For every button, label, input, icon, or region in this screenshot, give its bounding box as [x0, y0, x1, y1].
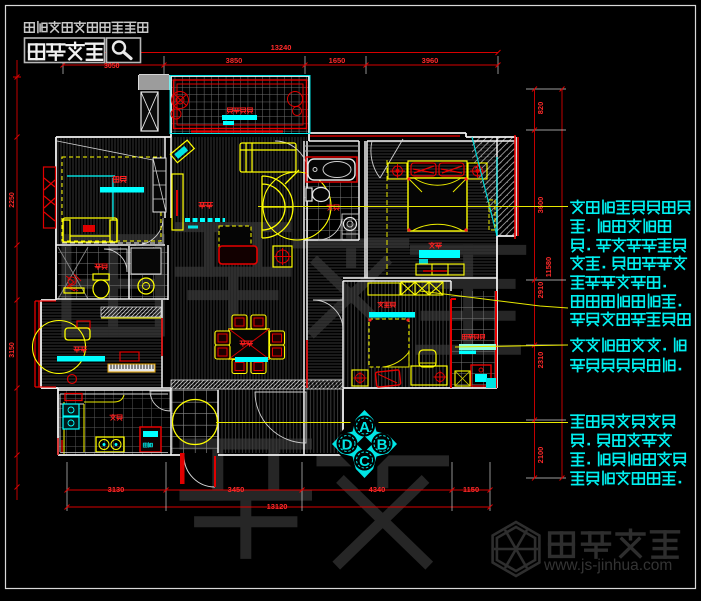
svg-text:2310: 2310	[536, 352, 545, 369]
svg-text:1650: 1650	[329, 56, 346, 65]
svg-text:2100: 2100	[536, 447, 545, 464]
svg-text:A: A	[359, 419, 370, 436]
svg-text:2250: 2250	[9, 192, 16, 208]
svg-text:820: 820	[536, 102, 545, 115]
svg-text:1150: 1150	[463, 485, 479, 494]
svg-text:13240: 13240	[271, 43, 292, 52]
svg-text:11580: 11580	[544, 257, 553, 277]
svg-text:3450: 3450	[228, 485, 245, 494]
svg-text:2910: 2910	[536, 282, 545, 299]
svg-text:3050: 3050	[104, 63, 120, 70]
svg-text:C: C	[359, 453, 370, 470]
svg-text:3130: 3130	[108, 485, 125, 494]
svg-text:3150: 3150	[9, 342, 16, 358]
svg-text:www.js-jinhua.com: www.js-jinhua.com	[543, 557, 672, 574]
svg-text:3600: 3600	[536, 197, 545, 214]
svg-text:4340: 4340	[369, 485, 386, 494]
svg-text:3960: 3960	[422, 56, 439, 65]
svg-text:B: B	[377, 437, 388, 454]
svg-text:13120: 13120	[267, 502, 288, 511]
svg-text:D: D	[342, 437, 353, 454]
svg-text:3850: 3850	[226, 56, 243, 65]
